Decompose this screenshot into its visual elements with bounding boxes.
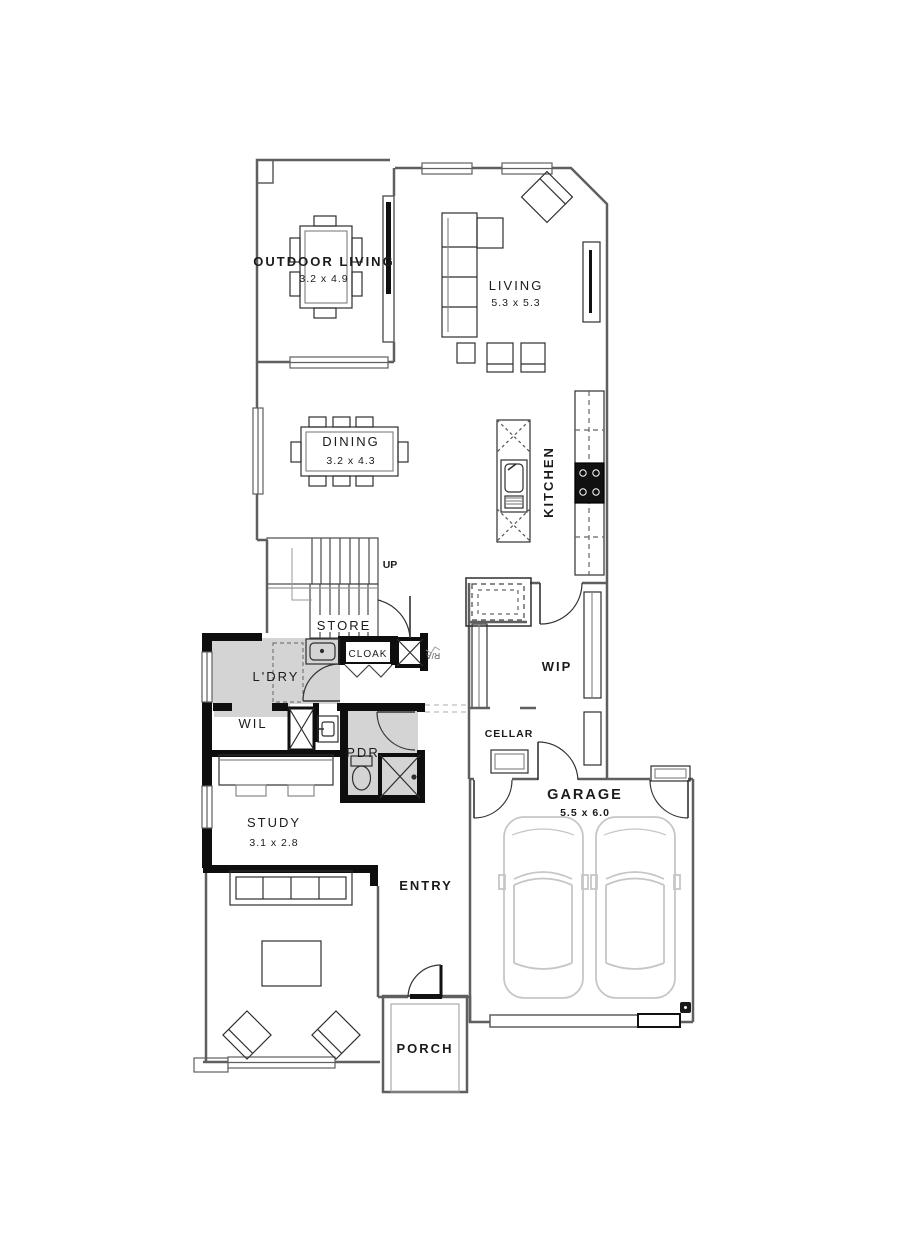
label-up: UP — [383, 559, 398, 571]
label-laundry: L'DRY — [253, 669, 300, 684]
dims-garage: 5.5 x 6.0 — [560, 807, 610, 819]
fridge-space-icon — [466, 578, 531, 626]
window-laundry — [202, 652, 212, 702]
label-kitchen: KITCHEN — [541, 446, 556, 518]
meter-box-icon — [680, 1002, 691, 1013]
desk-icon — [219, 755, 333, 796]
label-living: LIVING — [489, 278, 544, 293]
dims-study: 3.1 x 2.8 — [249, 837, 298, 849]
ottomans-icon — [457, 343, 545, 372]
label-return-air: R/A — [426, 651, 441, 661]
lounge-sofa-icon — [230, 871, 352, 905]
pantry-door-top — [540, 583, 582, 624]
tv-unit-icon — [583, 242, 600, 322]
vanity-basin-icon — [318, 716, 338, 742]
window-dining — [253, 408, 263, 494]
cooktop-icon — [575, 463, 604, 503]
floor-plan: OUTDOOR LIVING 3.2 x 4.9 LIVING 5.3 x 5.… — [0, 0, 901, 1246]
window-lounge — [228, 1057, 335, 1068]
label-outdoor-living: OUTDOOR LIVING — [253, 254, 394, 269]
label-porch: PORCH — [397, 1041, 454, 1056]
label-entry: ENTRY — [399, 878, 453, 893]
window-outdoor-living — [290, 357, 388, 368]
dims-dining: 3.2 x 4.3 — [326, 455, 375, 467]
bulkhead-dashed — [425, 705, 470, 712]
sliding-glass-door — [383, 196, 394, 342]
label-garage: GARAGE — [547, 787, 623, 803]
label-cloak: CLOAK — [349, 649, 388, 660]
island-sink-icon — [505, 464, 523, 508]
coffee-table-icon — [262, 941, 321, 986]
pantry-shelves — [472, 592, 690, 781]
sofa-icon — [442, 213, 503, 337]
dining-table-icon — [291, 417, 408, 486]
label-powder: PDR — [346, 745, 379, 760]
garage-internal-door — [474, 780, 512, 818]
label-wil: WIL — [238, 716, 267, 731]
garage-door — [490, 1014, 680, 1027]
return-air-grille-icon — [397, 639, 423, 666]
linen-cupboard-icon — [289, 708, 314, 750]
cars — [499, 817, 680, 998]
lounge-armchair-left-icon — [223, 1011, 271, 1059]
walls-thin — [194, 160, 693, 1072]
kitchen-fixtures — [466, 391, 690, 781]
label-cellar: CELLAR — [485, 728, 534, 740]
window-living-top-right — [502, 163, 552, 174]
window-study — [202, 786, 212, 828]
armchair-icon — [522, 172, 573, 223]
car-icon-right — [591, 817, 680, 998]
label-study: STUDY — [247, 815, 301, 830]
floor-plan-drawing: OUTDOOR LIVING 3.2 x 4.9 LIVING 5.3 x 5.… — [0, 0, 901, 1246]
store-door — [378, 596, 410, 638]
pantry-wall-stubs — [470, 622, 536, 708]
pantry-door-bottom — [538, 742, 578, 780]
label-dining: DINING — [322, 434, 380, 449]
label-store: STORE — [317, 618, 372, 633]
garage-side-door — [650, 780, 688, 818]
dims-outdoor-living: 3.2 x 4.9 — [299, 273, 348, 285]
kitchen-bench — [575, 391, 604, 575]
car-icon-left — [499, 817, 588, 998]
kitchen-island — [497, 420, 530, 542]
door-mat — [410, 994, 442, 999]
lounge-armchair-right-icon — [312, 1011, 360, 1059]
front-door — [408, 965, 441, 997]
label-pantry: WIP — [542, 659, 573, 674]
window-living-top-left — [422, 163, 472, 174]
dims-living: 5.3 x 5.3 — [491, 297, 540, 309]
